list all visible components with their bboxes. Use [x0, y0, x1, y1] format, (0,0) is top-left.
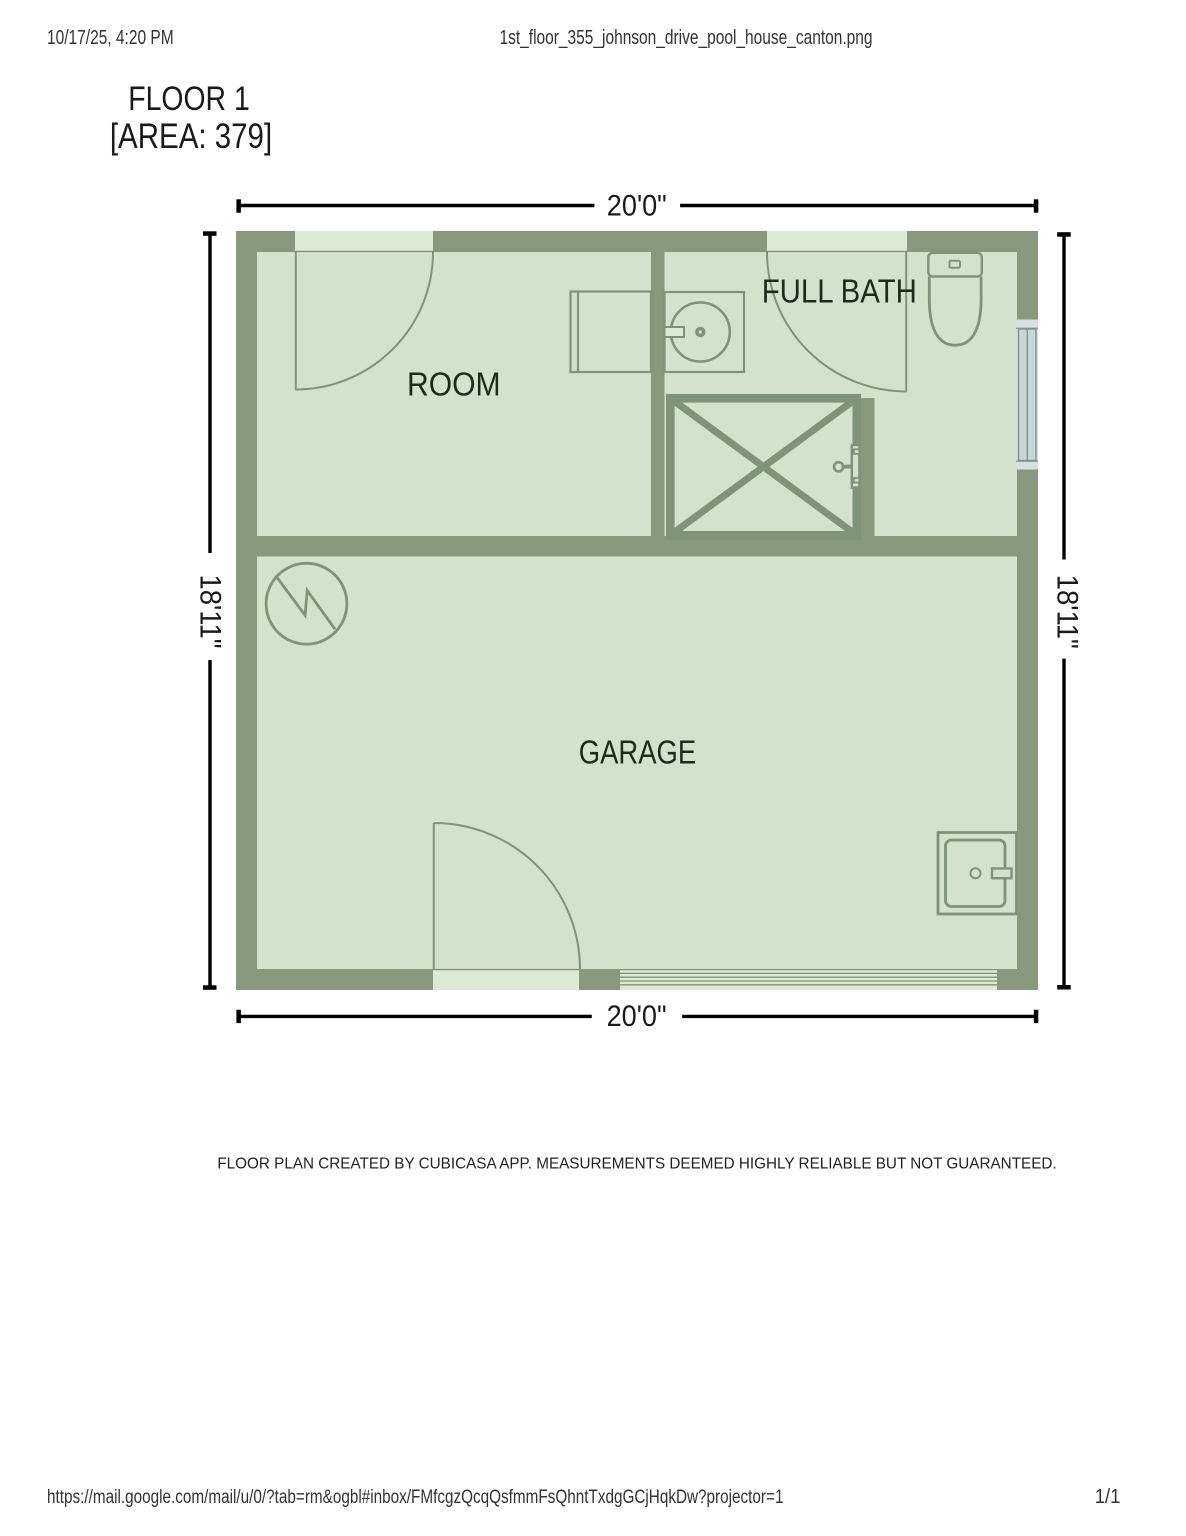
svg-text:ROOM: ROOM	[407, 365, 501, 403]
svg-text:1/1: 1/1	[1095, 1485, 1121, 1508]
svg-text:FULL BATH: FULL BATH	[762, 273, 917, 310]
svg-text:18'11": 18'11"	[193, 574, 226, 648]
svg-text:FLOOR 1: FLOOR 1	[128, 79, 249, 117]
svg-text:[AREA: 379]: [AREA: 379]	[110, 117, 272, 156]
svg-text:https://mail.google.com/mail/u: https://mail.google.com/mail/u/0/?tab=rm…	[47, 1485, 783, 1507]
svg-text:1st_floor_355_johnson_drive_po: 1st_floor_355_johnson_drive_pool_house_c…	[500, 26, 873, 50]
svg-text:10/17/25, 4:20 PM: 10/17/25, 4:20 PM	[47, 26, 174, 48]
svg-text:20'0": 20'0"	[607, 189, 667, 223]
svg-text:FLOOR PLAN CREATED BY CUBICASA: FLOOR PLAN CREATED BY CUBICASA APP. MEAS…	[217, 1155, 1056, 1172]
svg-text:18'11": 18'11"	[1050, 575, 1083, 649]
svg-text:GARAGE: GARAGE	[579, 735, 696, 771]
svg-text:20'0": 20'0"	[607, 1000, 667, 1034]
